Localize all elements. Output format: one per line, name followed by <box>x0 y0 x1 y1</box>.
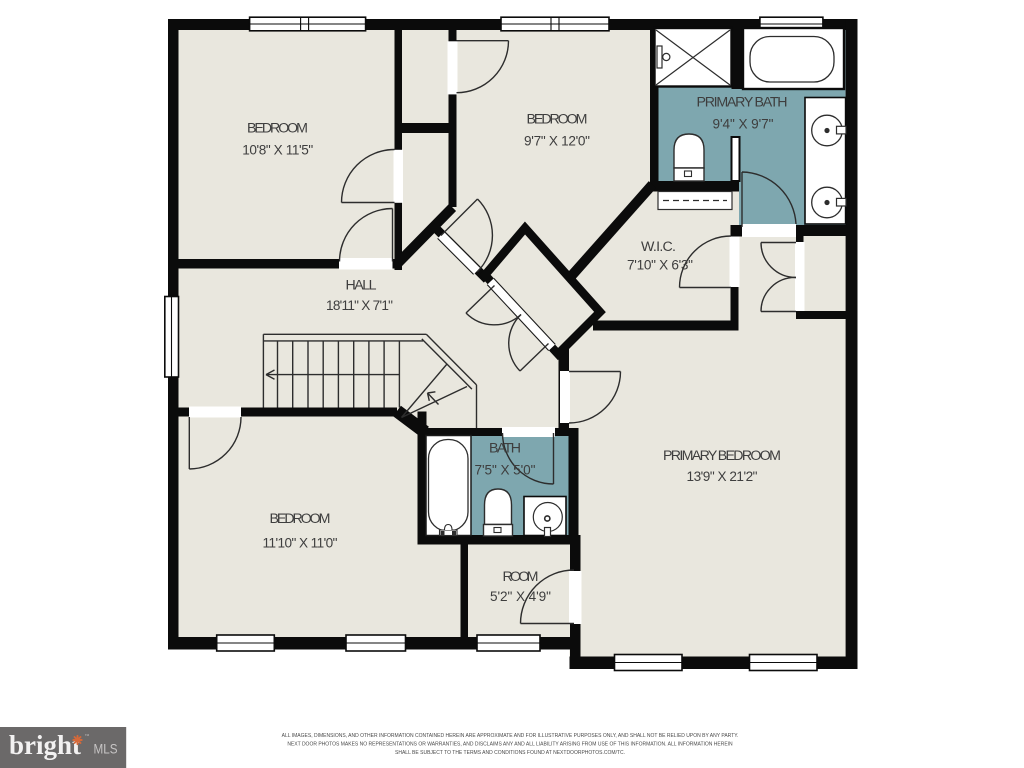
svg-text:MLS: MLS <box>94 741 118 757</box>
svg-text:BEDROOM: BEDROOM <box>270 511 331 527</box>
svg-text:NEXT DOOR PHOTOS MAKES NO REPR: NEXT DOOR PHOTOS MAKES NO REPRESENTATION… <box>287 742 733 748</box>
svg-text:7'10" X 6'3": 7'10" X 6'3" <box>627 258 693 273</box>
svg-text:BEDROOM: BEDROOM <box>527 112 588 128</box>
svg-text:ROOM: ROOM <box>503 569 539 585</box>
svg-text:7'5" X 5'0": 7'5" X 5'0" <box>475 463 536 478</box>
svg-text:5'2" X 4'9": 5'2" X 4'9" <box>490 589 551 604</box>
svg-text:PRIMARY BEDROOM: PRIMARY BEDROOM <box>663 448 781 464</box>
svg-text:18'11" X 7'1": 18'11" X 7'1" <box>326 298 393 313</box>
svg-text:™: ™ <box>85 734 90 740</box>
svg-text:BATH: BATH <box>489 441 521 457</box>
svg-text:9'4" X 9'7": 9'4" X 9'7" <box>713 116 774 131</box>
svg-text:BEDROOM: BEDROOM <box>247 121 308 137</box>
svg-text:10'8" X 11'5": 10'8" X 11'5" <box>242 143 313 158</box>
svg-text:HALL: HALL <box>346 278 377 294</box>
svg-text:ALL IMAGES, DIMENSIONS, AND OT: ALL IMAGES, DIMENSIONS, AND OTHER INFORM… <box>282 733 739 739</box>
svg-text:bright: bright <box>9 730 81 760</box>
svg-text:PRIMARY BATH: PRIMARY BATH <box>697 95 788 111</box>
svg-text:SHALL BE SUBJECT TO THE TERMS: SHALL BE SUBJECT TO THE TERMS AND CONDIT… <box>395 750 625 756</box>
svg-text:W.I.C.: W.I.C. <box>641 239 676 255</box>
svg-text:11'10" X 11'0": 11'10" X 11'0" <box>263 535 338 550</box>
svg-text:13'9" X 21'2": 13'9" X 21'2" <box>687 469 758 484</box>
svg-text:9'7" X 12'0": 9'7" X 12'0" <box>524 134 590 149</box>
